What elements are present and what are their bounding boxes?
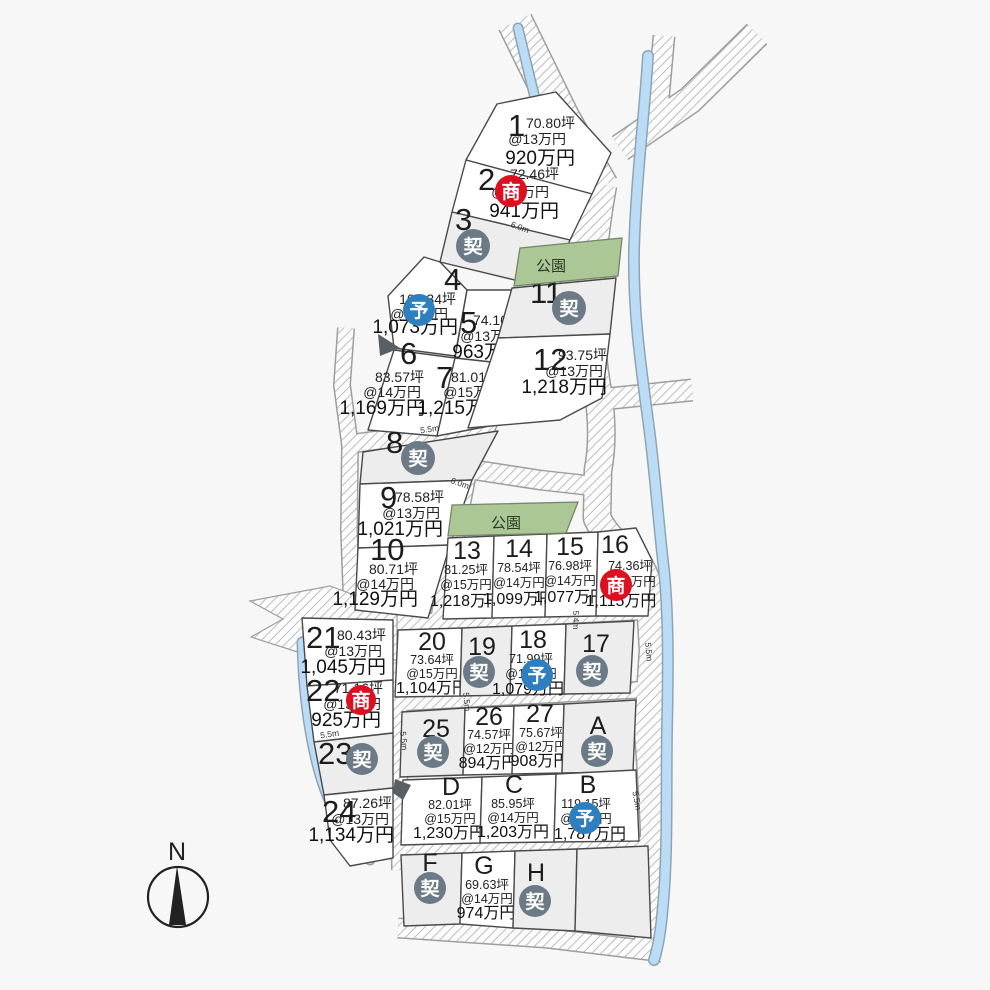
- badge-label: 契: [419, 877, 440, 900]
- lot-price: 1,134万円: [308, 825, 394, 846]
- status-badge-contracted: 契: [417, 736, 449, 768]
- badge-label: 契: [558, 297, 579, 320]
- lot-number: H: [527, 859, 545, 887]
- lot-area: 83.57坪: [375, 369, 424, 385]
- dim-label: 5.5m: [643, 642, 655, 662]
- badge-label: 契: [586, 740, 607, 763]
- badge-label: 予: [409, 301, 428, 322]
- lot-area: 80.43坪: [337, 627, 386, 643]
- park-central: 公園: [448, 502, 578, 536]
- lot-area: 75.67坪: [519, 726, 563, 740]
- lot-area: 80.71坪: [369, 561, 418, 577]
- badge-label: 予: [575, 809, 594, 830]
- lot-number: 8: [386, 425, 403, 460]
- status-badge-negotiating: 商: [495, 175, 527, 207]
- lot-number: C: [505, 771, 523, 799]
- map-canvas: 1 70.80坪 @13万円 920万円 2 72.46坪 @13万円 941万…: [0, 0, 990, 990]
- lot-area: 87.26坪: [343, 795, 392, 811]
- lot-area: 93.75坪: [558, 347, 607, 363]
- park-label: 公園: [536, 258, 566, 275]
- status-badge-contracted: 契: [346, 743, 378, 775]
- status-badge-contracted: 契: [576, 655, 608, 687]
- lot-area: 82.01坪: [428, 798, 472, 812]
- lot-C: C 85.95坪 @14万円 1,203万円: [477, 771, 556, 843]
- dim-label: 5.5m: [461, 692, 473, 712]
- lot-price: 1,129万円: [332, 589, 418, 610]
- lot-area: 73.64坪: [410, 653, 454, 667]
- badge-label: 契: [462, 235, 483, 258]
- lot-price: 1,203万円: [477, 824, 549, 841]
- dim-label: 5.4m: [571, 611, 581, 630]
- status-badge-contracted: 契: [401, 441, 435, 475]
- lot-number: 15: [556, 533, 584, 561]
- lot-26: 26 74.57坪 @12万円 894万円: [459, 703, 518, 775]
- lot-area: 78.58坪: [395, 489, 444, 505]
- status-badge-contracted: 契: [456, 229, 490, 263]
- lot-number: B: [580, 771, 597, 799]
- lot-number: 13: [453, 537, 481, 565]
- lot-unit-price: @14万円: [493, 576, 545, 590]
- status-badge-contracted: 契: [463, 656, 495, 688]
- lot-number: 6: [400, 336, 417, 371]
- park-label: 公園: [491, 515, 521, 532]
- status-badge-negotiating: 商: [346, 685, 376, 715]
- dim-label: 5.5m: [398, 731, 410, 751]
- status-badge-contracted: 契: [581, 735, 613, 767]
- lot-unit-price: @12万円: [515, 740, 567, 754]
- lot-area: 69.63坪: [465, 878, 509, 892]
- status-badge-contracted: 契: [414, 872, 446, 904]
- status-badge-reserved: 予: [569, 802, 601, 834]
- lot-price: 925万円: [311, 710, 381, 731]
- lot-area: 76.98坪: [548, 559, 592, 573]
- lot-price: 941万円: [489, 201, 559, 222]
- lot-area: 85.95坪: [491, 797, 535, 811]
- status-badge-negotiating: 商: [600, 569, 632, 601]
- lot-number: G: [474, 852, 493, 880]
- lot-D: D 82.01坪 @15万円 1,230万円: [401, 773, 485, 845]
- lot-area: 74.57坪: [467, 728, 511, 742]
- lot-price: 1,230万円: [413, 825, 485, 842]
- lot-unit-price: @15万円: [406, 667, 458, 681]
- lot-number: 27: [526, 700, 554, 728]
- lot-price: 908万円: [511, 753, 570, 770]
- lot-unit-price: @13万円: [508, 131, 566, 147]
- lot-number: 26: [475, 703, 503, 731]
- subdivision-map: 1 70.80坪 @13万円 920万円 2 72.46坪 @13万円 941万…: [0, 0, 990, 990]
- badge-label: 商: [501, 180, 520, 203]
- lot-area: 70.80坪: [526, 115, 575, 131]
- lot-20: 20 73.64坪 @15万円 1,104万円: [395, 628, 468, 697]
- lot-unit-price: @14万円: [461, 892, 513, 906]
- lot-unit-price: @15万円: [424, 812, 476, 826]
- lot-number: 18: [519, 626, 547, 654]
- badge-label: 商: [351, 689, 370, 712]
- lot-B: B 119.15坪 @15万円 1,787万円: [554, 770, 639, 843]
- lot-unit-price: @14万円: [487, 811, 539, 825]
- lot-27: 27 75.67坪 @12万円 908万円: [511, 700, 570, 774]
- status-badge-contracted: 契: [519, 885, 551, 917]
- badge-label: 契: [581, 660, 602, 683]
- badge-label: 契: [524, 890, 545, 913]
- lot-price: 894万円: [459, 755, 518, 772]
- compass-north-label: N: [168, 838, 186, 866]
- lot-area: 81.25坪: [444, 563, 488, 577]
- lot-price: 1,218万円: [521, 377, 607, 398]
- lot-price: 1,169万円: [339, 398, 425, 419]
- badge-label: 契: [468, 661, 489, 684]
- badge-label: 契: [351, 748, 372, 771]
- lot-number: 16: [601, 531, 629, 559]
- lot-price: 974万円: [457, 905, 516, 922]
- lot-G: G 69.63坪 @14万円 974万円: [457, 851, 516, 928]
- lot-number: 20: [418, 628, 446, 656]
- lot-unit-price: @12万円: [463, 742, 515, 756]
- status-badge-reserved: 予: [403, 294, 435, 326]
- badge-label: 商: [606, 574, 625, 597]
- lot-unlabeled: [575, 846, 651, 938]
- badge-label: 予: [527, 666, 546, 687]
- status-badge-reserved: 予: [521, 659, 553, 691]
- lot-number: 17: [582, 630, 610, 658]
- badge-label: 契: [407, 447, 428, 470]
- lot-price: 1,104万円: [396, 680, 468, 697]
- lot-number: 14: [505, 535, 533, 563]
- lot-area: 78.54坪: [497, 561, 541, 575]
- lot-unit-price: @14万円: [544, 574, 596, 588]
- lot-unit-price: @15万円: [440, 578, 492, 592]
- status-badge-contracted: 契: [552, 291, 586, 325]
- lot-number: D: [442, 773, 460, 801]
- badge-label: 契: [422, 741, 443, 764]
